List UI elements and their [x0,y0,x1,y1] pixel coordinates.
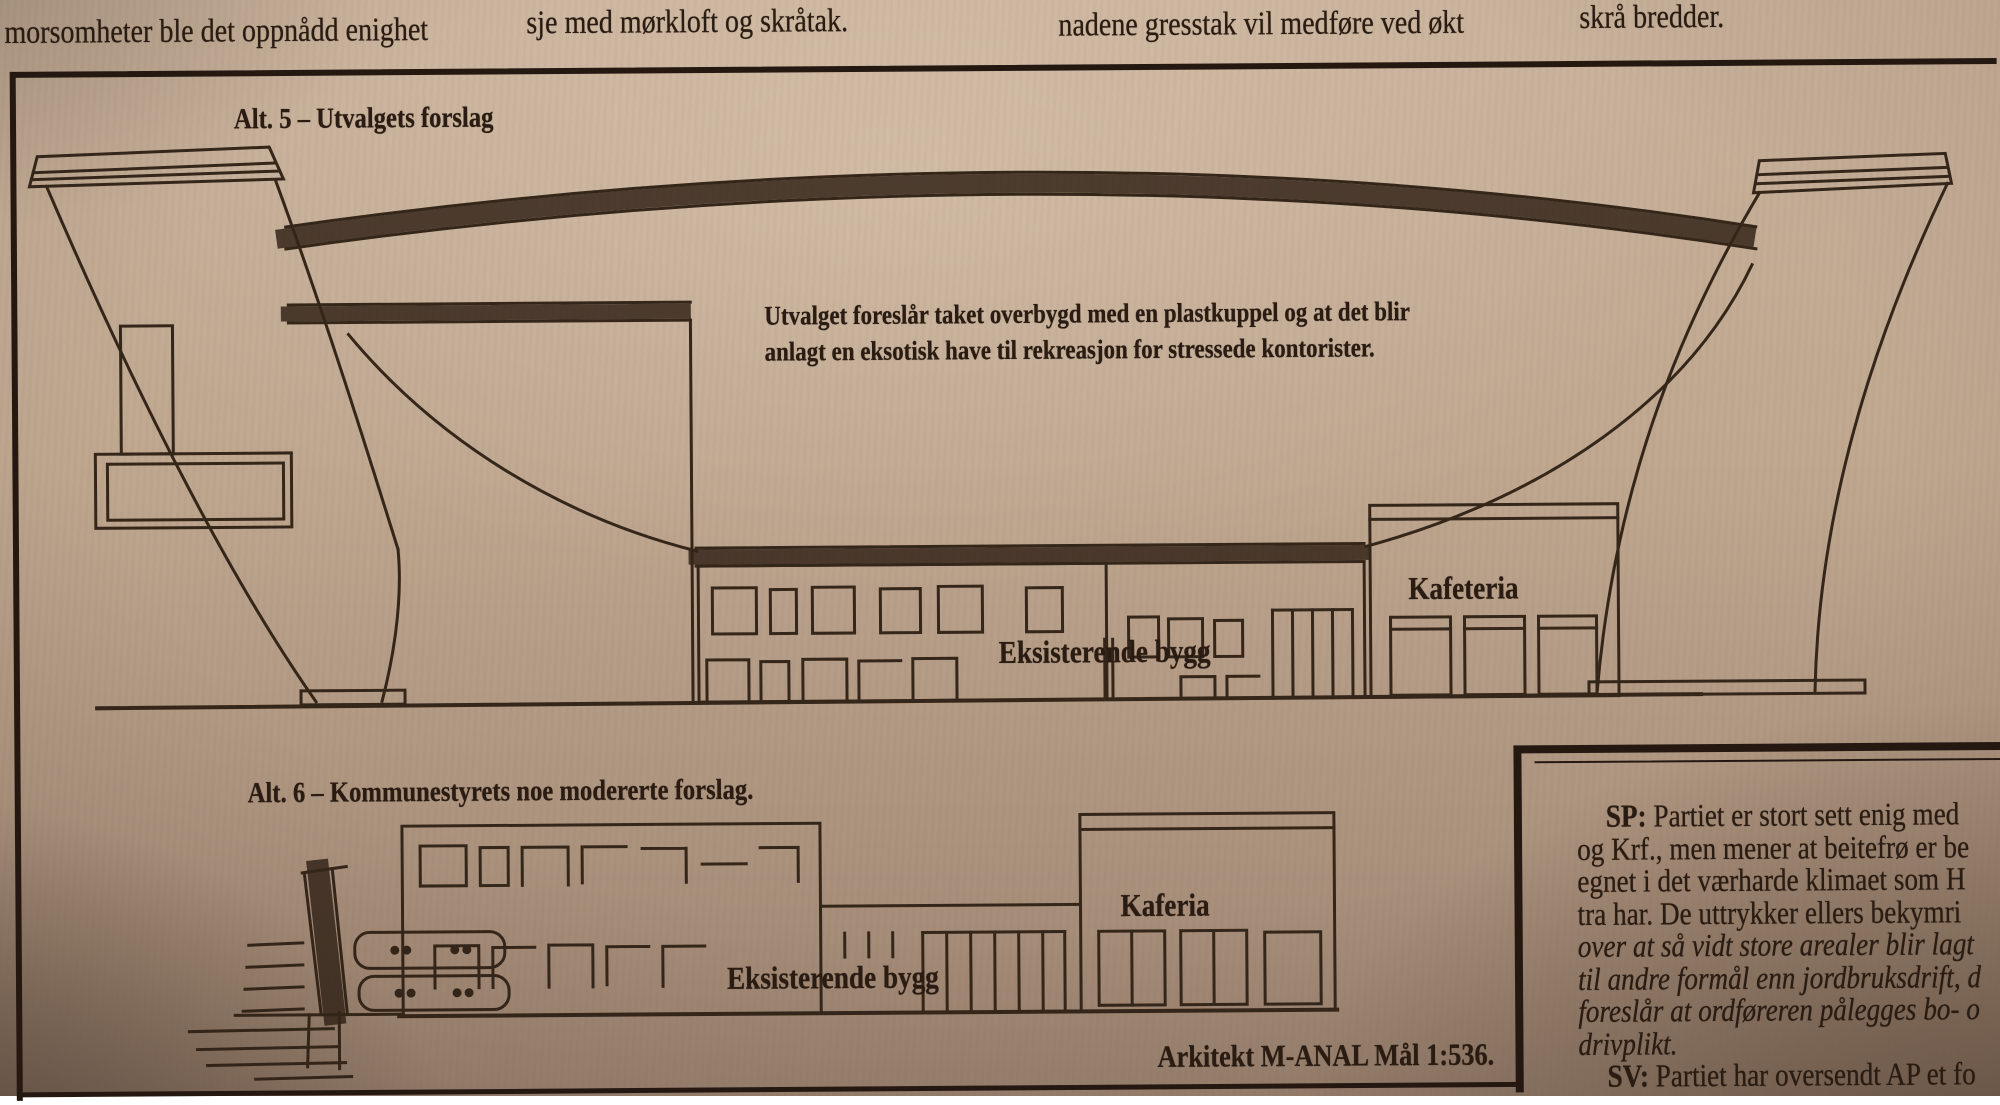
figure-caption: Arkitekt M-ANAL Mål 1:536. [1157,1037,1494,1075]
party-label-sv: SV: [1607,1057,1649,1093]
existing-building-label-alt6: Eksisterende bygg [727,958,939,996]
existing-building-label-alt5: Eksisterende bygg [999,633,1211,671]
dock-and-boats [188,865,509,1079]
newsprint-fragment-2: sje med mørkloft og skråtak. [526,3,848,42]
tall-building [288,302,693,704]
mid-section-alt5 [1104,561,1365,699]
dome-arch [285,167,1756,259]
newsprint-fragment-3: nadene gresstak vil medføre ved økt [1058,5,1464,45]
newsprint-fragment-4: skrå bredder. [1579,0,1724,37]
scan-content: morsomheter ble det oppnådd enighet sje … [0,0,2000,1103]
existing-building-alt5 [698,563,1107,702]
article-line: SV: Partiet har oversendt AP et fo [1579,1056,2000,1092]
cafeteria-label-alt6: Kaferia [1120,887,1209,925]
newsprint-fragment-1: morsomheter ble det oppnådd enighet [4,12,428,52]
article-text-box: SP: Partiet er stort sett enig med og Kr… [1577,796,2000,1093]
article-line-text: foreslår at ordføreren pålegges bo- o [1578,990,1980,1029]
alt5-drawing [29,135,1955,708]
alt5-annotation: Utvalget foreslår taket overbygd med en … [764,292,1524,369]
alt5-annotation-line-1: Utvalget foreslår taket overbygd med en … [764,293,1410,334]
cafeteria-label-alt5: Kafeteria [1408,569,1519,607]
article-line-text: drivplikt. [1578,1025,1677,1062]
party-label-sp: SP: [1606,797,1647,833]
alt5-annotation-line-2: anlagt en eksotisk have til rekreasjon f… [764,329,1410,370]
article-line: foreslår at ordføreren pålegges bo- o [1578,991,2000,1027]
article-line-text: Partiet har oversendt AP et fo [1649,1055,1976,1093]
right-tower [1585,153,1955,695]
alt5-title: Alt. 5 – Utvalgets forslag [234,102,494,137]
alt6-title: Alt. 6 – Kommunestyrets noe modererte fo… [248,774,754,811]
